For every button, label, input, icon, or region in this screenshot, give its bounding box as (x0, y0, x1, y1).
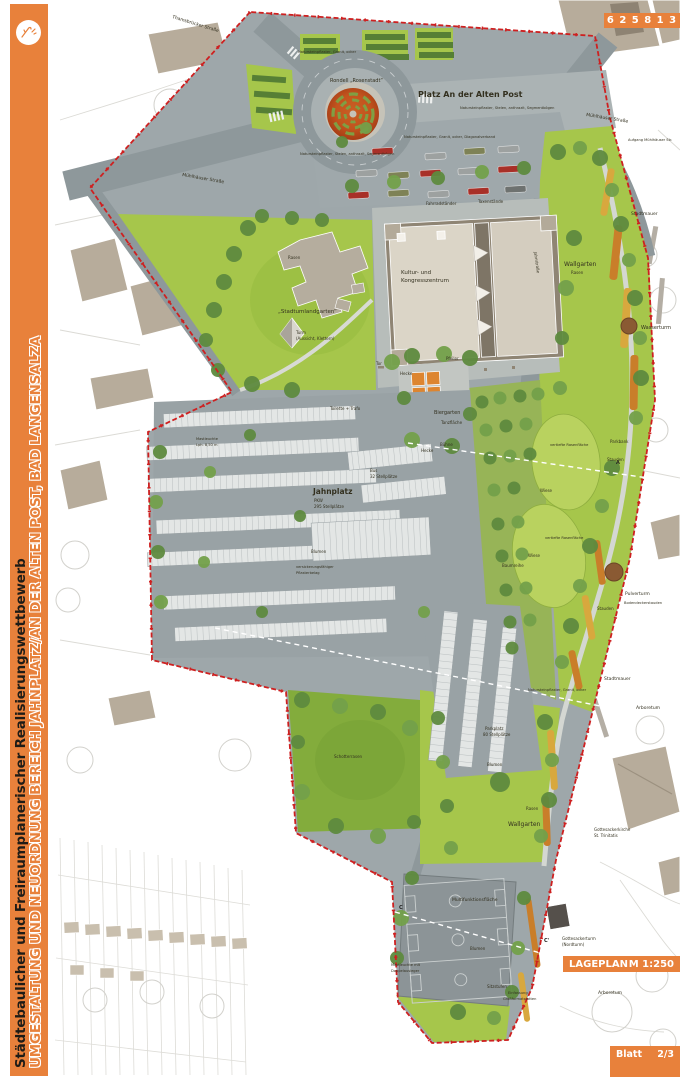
place-label-kirche-1: Gottesackerkirche (594, 827, 631, 832)
section-mark-a: A (616, 460, 620, 466)
place-label-kultur-2: Kongresszentrum (401, 278, 449, 284)
competition-title: Städtebaulicher und Freiraumplanerischer… (13, 558, 29, 1068)
ann-pflaster-ocker-2: Natursteinpflaster, Granit, ocker (528, 688, 587, 692)
section-mark-c2: C' (544, 938, 550, 944)
ann-versickerung-1: versickerungsfähiger (296, 565, 334, 569)
ann-schotterrasen: Schotterrasen (334, 754, 363, 759)
ann-wiese-2: Wiese (528, 553, 541, 558)
label-bus: Bus (370, 468, 377, 473)
place-label-platz-alte-post: Platz An der Alten Post (418, 90, 523, 99)
ann-hecke-2: Hecke (421, 448, 434, 453)
ann-pflaster-ocker-1: Natursteinpflaster, Granit, ocker (298, 50, 357, 54)
ann-taxenstaende: Taxenstände (477, 199, 504, 204)
sheet-number-box: Blatt 2/3 (610, 1046, 680, 1077)
place-label-wasserturm: Wasserturm (641, 325, 671, 331)
ann-rasen-2: Rasen (571, 270, 584, 275)
ann-pflaster-stelen-1: Natursteinpflaster, Stelen, anthrazit, S… (300, 152, 394, 156)
place-label-kirche-2: St. Trinitatis (594, 833, 618, 838)
place-label-arboretum-sued: Arboretum (598, 990, 622, 996)
ann-baumreihe: Baumreihe (502, 563, 524, 568)
place-label-buehne: Bühne (440, 442, 453, 447)
label-aufgang: Aufgang Mühlhäuser Str. (628, 138, 672, 142)
ann-einfassung-2: Großformatplatten (503, 997, 536, 1001)
kultur-kongresszentrum-building (384, 215, 563, 366)
place-label-nordturm-2: (Nordturm) (562, 942, 585, 947)
ann-stauden-2: Stauden (597, 606, 614, 611)
ann-fahrradstaender: Fahrradständer (426, 201, 457, 206)
ann-rasen-1: Rasen (288, 255, 301, 260)
ann-pflaster-stelen-2: Natursteinpflaster, Stelen, anthrazit, S… (460, 106, 554, 110)
place-label-pulverturm: Pulverturm (625, 591, 650, 597)
site-plan: Thamsbrücker Straße Mühlhäuser Straße Mü… (0, 0, 680, 1079)
place-label-jahnplatz: Jahnplatz (312, 487, 352, 496)
ann-versickerung-2: Pflasterbelag (296, 571, 320, 575)
ann-tor: Tor (375, 361, 382, 366)
gottesackerturm-tower (546, 903, 570, 929)
entry-code: 6 2 5 8 1 3 (604, 13, 680, 28)
ann-blumen-3: Blumen (470, 946, 486, 951)
place-label-kultur-1: Kultur- und (401, 270, 431, 276)
section-mark-c: C (399, 905, 403, 911)
place-label-multifunktionsflaeche: Multifunktionsfläche (452, 897, 498, 903)
ann-vertieft-1: vertiefte Rasenfläche (550, 443, 589, 447)
place-label-stadtmauer-sued: Stadtmauer (604, 676, 631, 682)
ann-parkplatz-1: Parkplatz (485, 726, 503, 731)
plan-title: LAGEPLAN (569, 959, 628, 970)
place-label-stadtmauer-nord: Stadtmauer (631, 211, 658, 217)
ann-sitzstufen: Sitzstufen (487, 984, 507, 989)
place-label-arboretum-ost: Arboretum (636, 705, 660, 711)
ann-mastleuchte-2: Lph. 8,50 m (196, 443, 218, 447)
plan-title-banner: LAGEPLAN M 1:250 (563, 956, 680, 972)
place-label-wallgarten-nord: Wallgarten (564, 261, 597, 268)
place-label-nordturm-1: Gottesackerturm (562, 936, 596, 941)
ann-hecke-1: Hecke (400, 371, 413, 376)
project-title: UMGESTALTUNG UND NEUORDNUNG BEREICH JAHN… (28, 336, 44, 1068)
rose-logo (16, 20, 41, 45)
place-label-rondell: Rondell „Rosenstadt“ (330, 78, 383, 84)
label-bus-stellplaetze: 32 Stellplätze (370, 474, 398, 479)
site-layer (66, 12, 655, 1043)
ann-pflaster-diag: Natursteinpflaster, Granit, ocker, Diago… (404, 135, 495, 139)
plan-scale: M 1:250 (629, 959, 674, 970)
sheet: Thamsbrücker Straße Mühlhäuser Straße Mü… (0, 0, 680, 1079)
place-label-turm-1: Turm (295, 330, 306, 335)
ann-mastleuchte-1: Mastleuchte (196, 437, 219, 441)
ann-vertieft-2: vertiefte Rasenfläche (545, 536, 584, 540)
ann-blumen-2: Blumen (487, 762, 503, 767)
label-jahnplatz-pkw: PKW (314, 498, 323, 503)
ann-rasen-3: Rasen (526, 806, 539, 811)
place-label-turm-2: (Aussicht, Klettern) (296, 336, 335, 341)
label-jahnplatz-stellplaetze: 295 Stellplätze (314, 504, 344, 509)
pulverturm-tower (605, 563, 623, 581)
ann-wiese-1: Wiese (540, 488, 553, 493)
ann-bodendecker: Bodendeckerstauden (624, 601, 662, 605)
ann-parkplatz-2: 80 Stellplätze (483, 732, 511, 737)
ann-pfeiler: Pfeiler (446, 356, 459, 361)
place-label-biergarten: Biergarten (434, 410, 460, 416)
ann-mastleuchte2-1: Mastleuchte mit (391, 963, 421, 967)
place-label-tanzflaeche: Tanzfläche (440, 420, 463, 425)
sheet-label: Blatt (616, 1049, 642, 1060)
place-label-stadtumlandgarten: „Stadtumlandgarten“ (278, 309, 337, 315)
wasserturm-tower (621, 318, 637, 334)
ann-blumen-1: Blumen (311, 549, 327, 554)
place-label-wallgarten-sued: Wallgarten (508, 821, 541, 828)
ann-mastleuchte2-2: Doppelausleger (391, 969, 420, 973)
ann-parkbank: Parkbank (610, 439, 629, 444)
ann-einfassung-1: Einfassung (508, 991, 528, 995)
sheet-number: 2/3 (657, 1049, 674, 1060)
ann-toilette: Toilette + Trafo (329, 406, 361, 411)
